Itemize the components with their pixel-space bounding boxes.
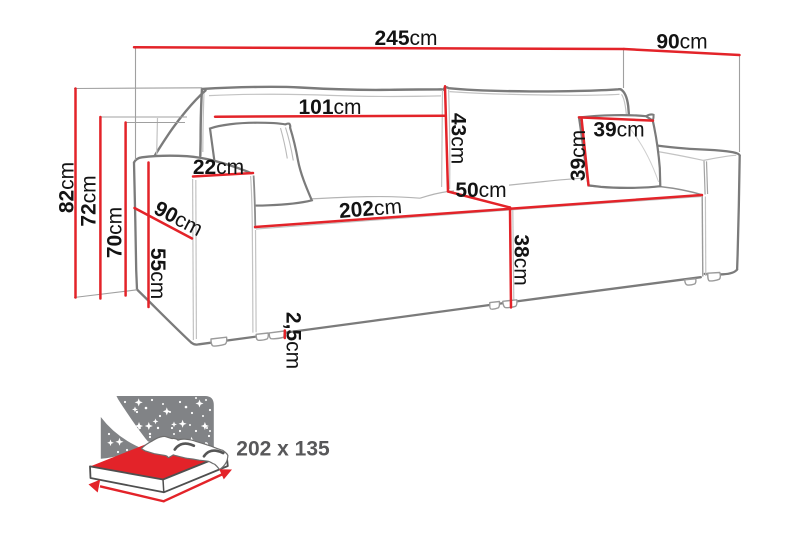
- svg-text:38cm: 38cm: [510, 234, 533, 285]
- svg-text:50cm: 50cm: [455, 179, 506, 202]
- svg-text:90cm: 90cm: [656, 31, 707, 54]
- svg-text:101cm: 101cm: [298, 96, 361, 119]
- svg-text:39cm: 39cm: [593, 119, 644, 142]
- svg-text:55cm: 55cm: [146, 248, 169, 299]
- svg-text:2,5cm: 2,5cm: [282, 312, 305, 369]
- svg-text:82cm: 82cm: [56, 162, 79, 213]
- svg-text:43cm: 43cm: [447, 113, 470, 164]
- svg-text:245cm: 245cm: [374, 27, 437, 50]
- svg-text:202 x 135: 202 x 135: [236, 438, 330, 461]
- svg-text:39cm: 39cm: [567, 130, 590, 181]
- svg-text:72cm: 72cm: [78, 175, 101, 226]
- svg-text:70cm: 70cm: [104, 207, 127, 258]
- svg-text:22cm: 22cm: [193, 156, 244, 179]
